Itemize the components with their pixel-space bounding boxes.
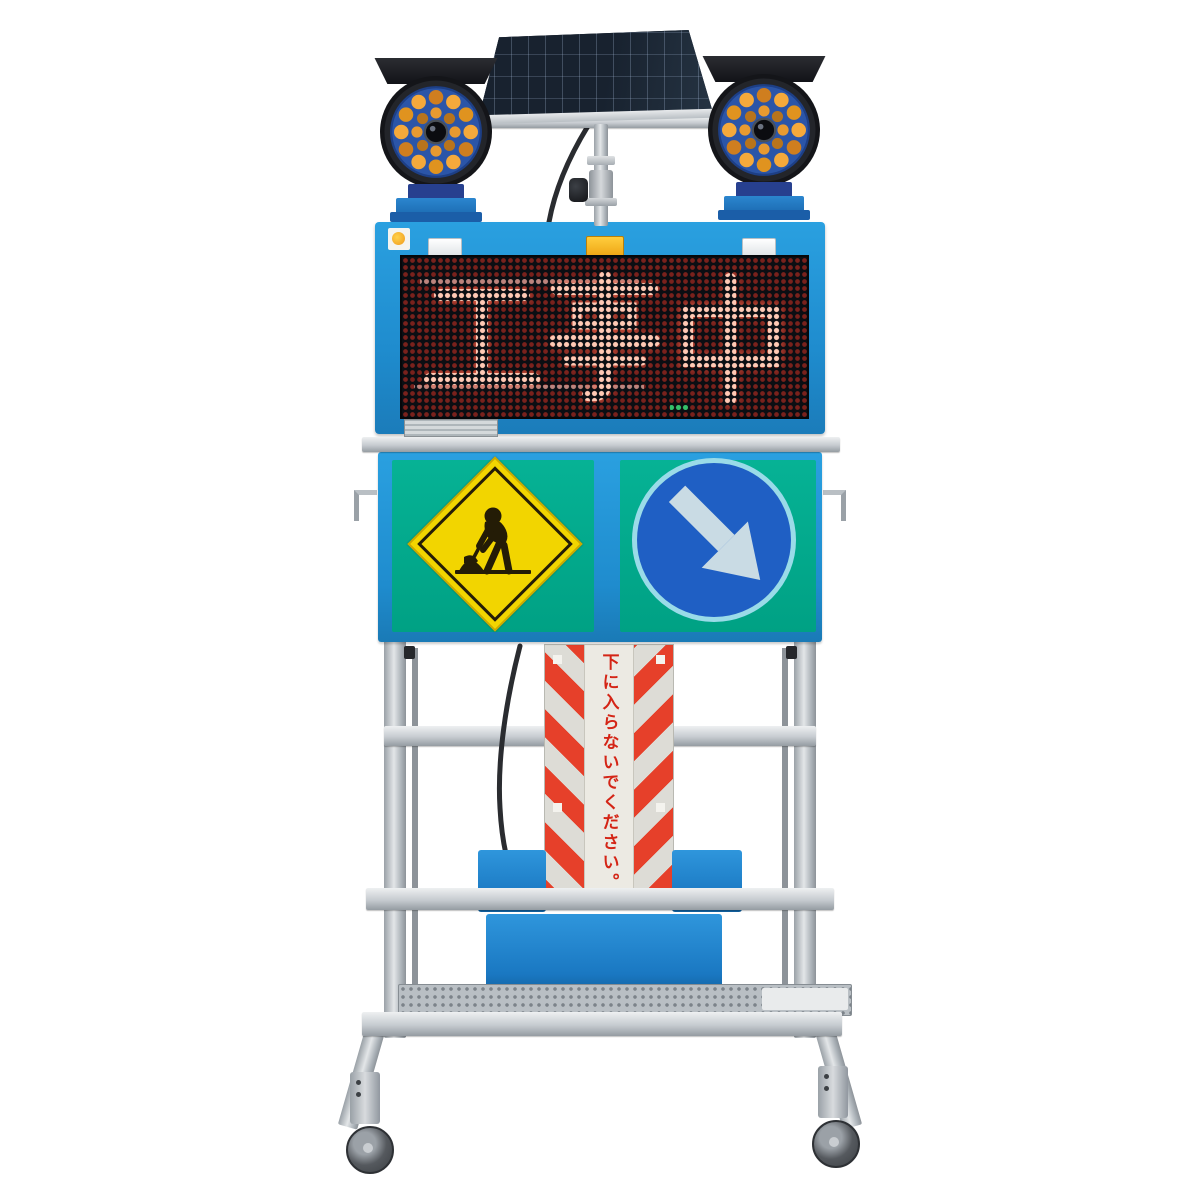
solar-panel <box>478 30 712 120</box>
frame-crossbar-lower <box>366 888 834 910</box>
platform-plate <box>762 988 848 1010</box>
keep-left-sign-circle <box>632 458 796 622</box>
beacon-light-icon <box>708 74 820 186</box>
frame-leg-right <box>794 640 816 1038</box>
cabinet-bottom-rail <box>362 437 840 452</box>
mast-clamp <box>589 170 613 200</box>
spec-plate <box>404 419 498 437</box>
beacon-mount-foot <box>390 212 482 222</box>
striped-warning-pole: 下に入らないでください。 <box>545 645 673 907</box>
led-pixel-mask <box>402 257 807 417</box>
frame-clip-left <box>404 646 415 659</box>
frame-leg-left <box>384 640 406 1038</box>
pole-mount-hole <box>656 803 665 812</box>
caster-fork-right <box>818 1066 848 1118</box>
diagonal-arrow-icon <box>637 463 791 617</box>
warning-beacon-right <box>702 46 826 224</box>
construction-worker-icon <box>443 492 543 592</box>
pole-warning-label: 下に入らないでください。 <box>585 645 633 907</box>
beacon-mount-foot <box>718 210 810 220</box>
frame-strut-left <box>412 648 418 1000</box>
pole-mount-hole <box>553 803 562 812</box>
battery-box-main <box>486 914 722 994</box>
mast-collar-lower <box>585 198 617 206</box>
caster-fork-left <box>350 1072 380 1124</box>
pole-mount-hole <box>553 655 562 664</box>
caster-wheel-left <box>346 1126 394 1174</box>
panel-hook-right <box>823 490 846 521</box>
caster-wheel-right <box>812 1120 860 1168</box>
mast-clamp-knob <box>569 178 588 202</box>
frame-base-rail <box>362 1012 842 1036</box>
pole-warning-text: 下に入らないでください。 <box>601 653 618 893</box>
maker-sticker <box>388 228 410 250</box>
product-photo-solar-led-sign-trolley: 下に入らないでください。 <box>0 0 1200 1200</box>
frame-clip-right <box>786 646 797 659</box>
led-matrix-screen: 工事中 <box>400 255 809 419</box>
mast-collar-upper <box>587 156 615 165</box>
panel-hook-left <box>354 490 377 521</box>
beacon-light-icon <box>380 76 492 188</box>
frame-strut-right <box>782 648 788 1000</box>
warning-beacon-left <box>374 48 498 224</box>
pole-mount-hole <box>656 655 665 664</box>
